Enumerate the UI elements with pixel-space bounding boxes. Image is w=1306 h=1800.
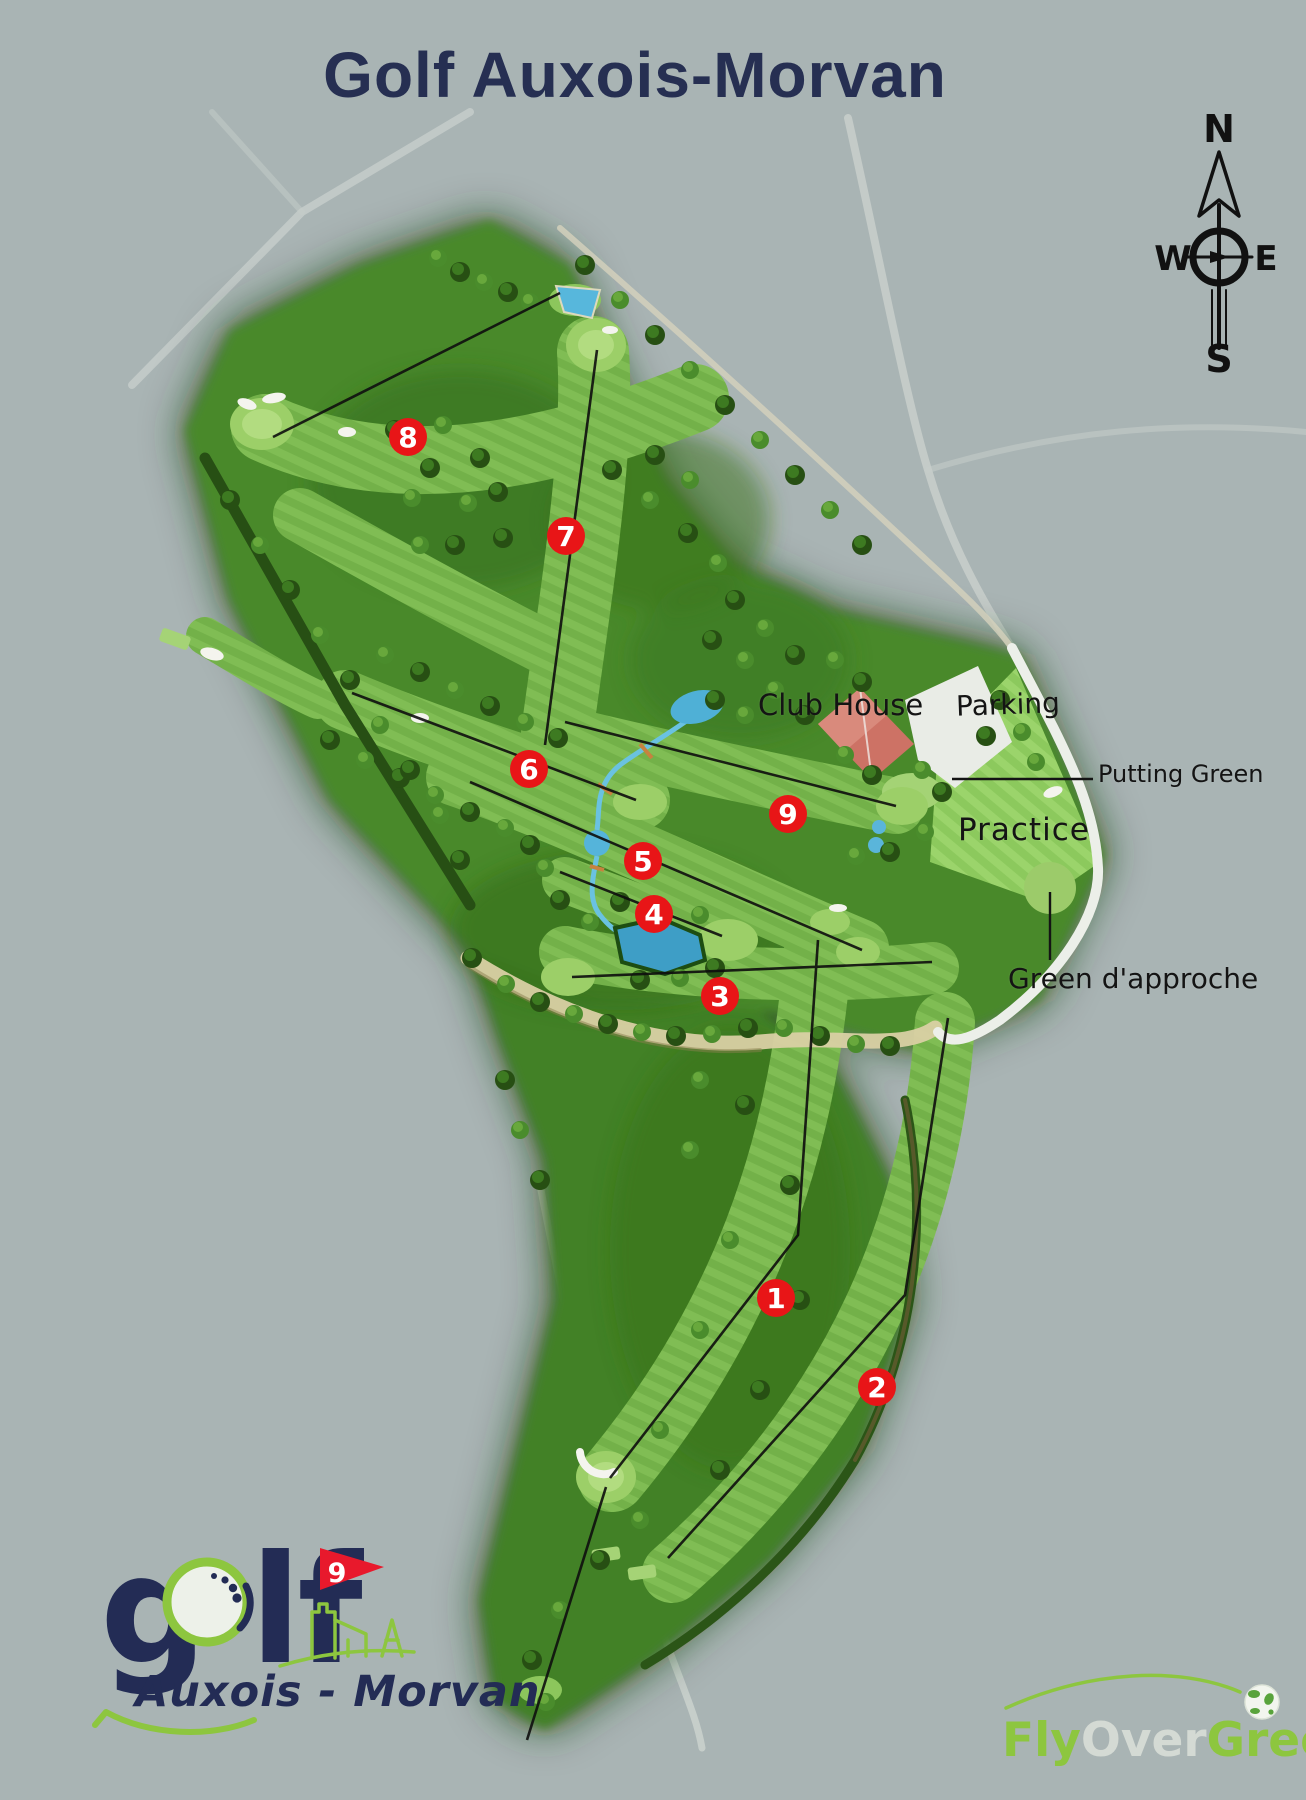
svg-text:1: 1: [766, 1282, 785, 1315]
svg-text:4: 4: [644, 898, 663, 931]
hole-marker-8: 8: [389, 418, 427, 456]
watermark-arc: [1006, 1675, 1240, 1708]
page-title: Golf Auxois-Morvan: [0, 38, 1270, 112]
svg-text:5: 5: [633, 845, 652, 878]
course-map-svg: 123456789 N W E S g lf 9 Auxois - Morvan: [0, 0, 1306, 1800]
putting-green-label: Putting Green: [1098, 760, 1264, 788]
golf-course-map-page: { "title": "Golf Auxois-Morvan", "compas…: [0, 0, 1306, 1800]
svg-text:8: 8: [398, 421, 417, 454]
hole-marker-2: 2: [858, 1368, 896, 1406]
green-approche-label: Green d'approche: [1008, 962, 1258, 995]
svg-text:3: 3: [710, 980, 729, 1013]
watermark-text: FlyOverGreen: [1002, 1713, 1306, 1768]
svg-text:7: 7: [556, 520, 575, 553]
hole-marker-7: 7: [547, 517, 585, 555]
watermark-over: Over: [1081, 1713, 1207, 1768]
watermark-green: Green: [1207, 1713, 1306, 1768]
compass-north-label: N: [1203, 107, 1235, 151]
practice-label: Practice: [958, 812, 1090, 848]
svg-text:2: 2: [867, 1371, 886, 1404]
watermark-fly: Fly: [1002, 1713, 1081, 1768]
hole-marker-4: 4: [635, 895, 673, 933]
logo-flag-number: 9: [328, 1558, 347, 1589]
logo-subtitle: Auxois - Morvan: [132, 1667, 541, 1717]
compass-rose: N W E S: [1154, 107, 1277, 381]
svg-text:9: 9: [778, 798, 797, 831]
flyovergreen-watermark: FlyOverGreen: [1002, 1675, 1306, 1768]
compass-west-label: W: [1154, 239, 1192, 279]
map-stage: 123456789 N W E S g lf 9 Auxois - Morvan: [0, 0, 1306, 1800]
hole-marker-5: 5: [624, 842, 662, 880]
hole-marker-1: 1: [757, 1279, 795, 1317]
hole-marker-3: 3: [701, 977, 739, 1015]
parking-label: Parking: [955, 686, 1060, 723]
compass-south-label: S: [1205, 337, 1232, 381]
svg-text:6: 6: [519, 753, 538, 786]
hole-marker-9: 9: [769, 795, 807, 833]
compass-east-label: E: [1254, 239, 1277, 279]
club-logo: g lf 9 Auxois - Morvan: [95, 1524, 541, 1732]
club-house-label: Club House: [758, 688, 923, 722]
hole-marker-6: 6: [510, 750, 548, 788]
